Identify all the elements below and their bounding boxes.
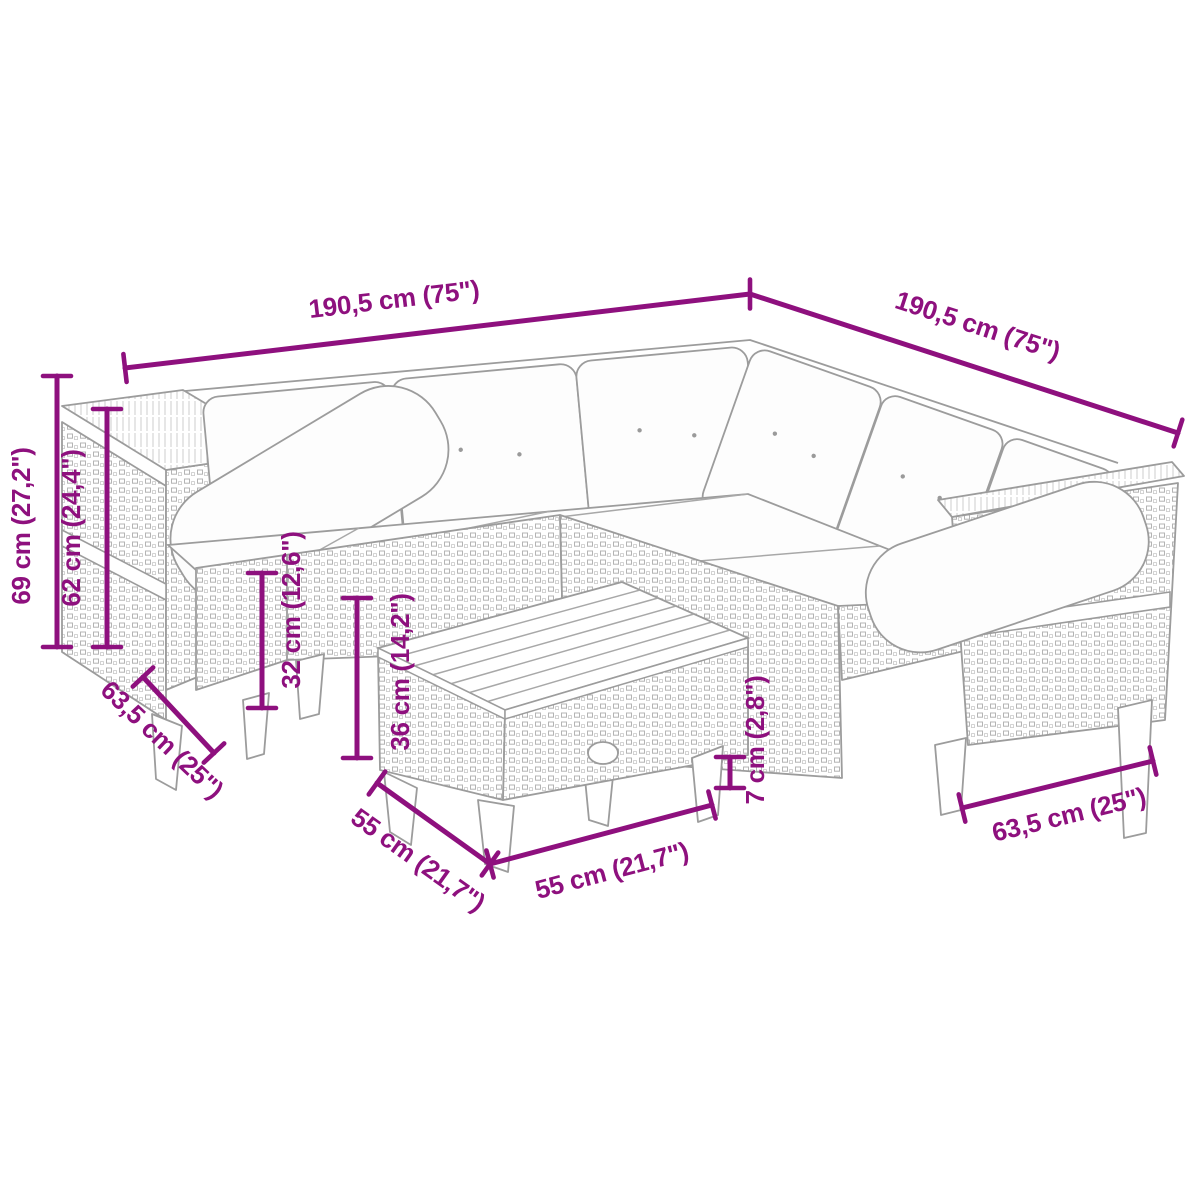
dimension-label-sofa-width-left: 190,5 cm (75") [307,274,481,324]
dimension-label-height-total: 69 cm (27,2") [6,447,36,604]
dimension-label-table-height: 36 cm (14,2") [385,593,415,750]
umbrella-hole [588,742,618,764]
product-dimension-diagram: 190,5 cm (75") 190,5 cm (75") 69 cm (27,… [0,0,1200,1200]
dimension-label-table-depth: 55 cm (21,7") [345,802,490,918]
dimension-label-sofa-width-right: 190,5 cm (75") [892,285,1064,367]
dimension-label-height-frame: 62 cm (24,4") [56,449,86,606]
diagram-canvas: 190,5 cm (75") 190,5 cm (75") 69 cm (27,… [0,0,1200,1200]
dimension-label-leg-height: 7 cm (2,8") [740,676,770,805]
dimension-label-seat-height: 32 cm (12,6") [276,531,306,688]
